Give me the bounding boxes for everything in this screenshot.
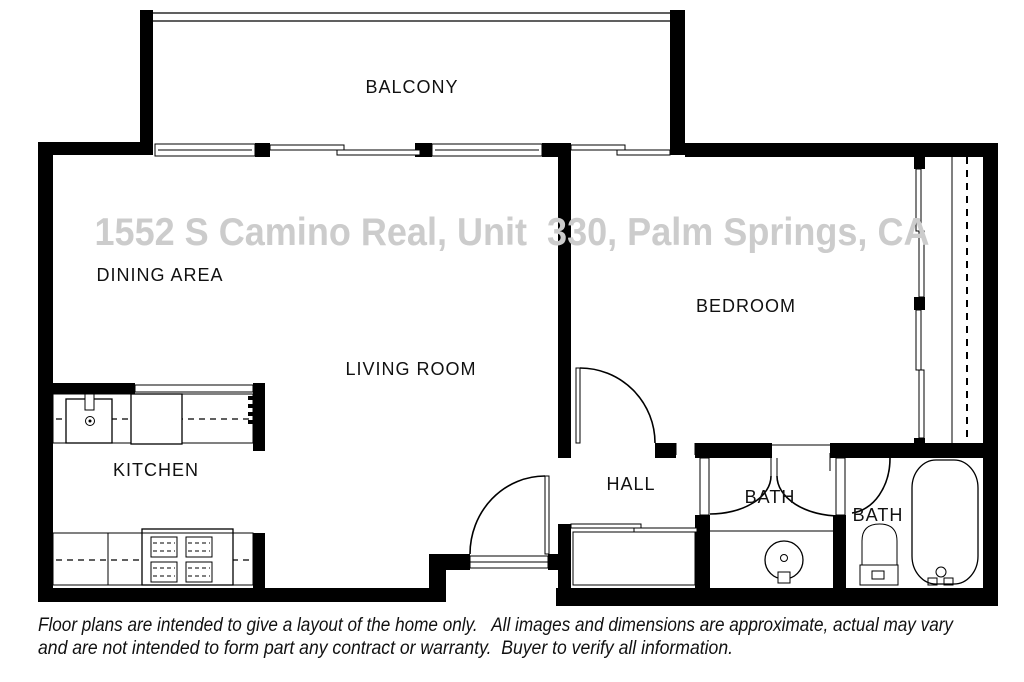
- toilet-tank-icon: [860, 565, 898, 585]
- room-label-bath-1: BATH: [745, 487, 796, 507]
- wall-left: [38, 142, 53, 602]
- closet-track-block: [914, 297, 925, 310]
- room-label-dining-area: DINING AREA: [96, 265, 223, 285]
- kitchen-drain-dot: [89, 420, 92, 423]
- kitchen-pier-lower: [253, 533, 265, 602]
- kitchen-pass-through: [135, 385, 253, 392]
- toilet-bowl-icon: [862, 524, 897, 567]
- hall-closet: [571, 524, 697, 585]
- bath1-fixtures: [710, 531, 833, 583]
- kitchen-wall-north: [52, 383, 135, 395]
- floor-plan-svg: 1552 S Camino Real, Unit 330, Palm Sprin…: [0, 0, 1024, 682]
- bedroom-wall-south-b: [695, 443, 772, 458]
- sink-pedestal-base: [778, 572, 790, 583]
- hall-closet-wall-west: [558, 524, 571, 602]
- north-wall-fenestration: [155, 143, 670, 157]
- refrigerator-icon: [131, 394, 182, 444]
- bath1-pocket-door-icon: [700, 458, 709, 515]
- room-label-bath-2: BATH: [853, 505, 904, 525]
- room-label-kitchen: KITCHEN: [113, 460, 199, 480]
- sliding-door-panel-icon: [571, 145, 625, 150]
- hall-closet-sliding-panel-icon: [571, 524, 641, 528]
- balcony-wall-right: [670, 10, 685, 155]
- room-label-living-room: LIVING ROOM: [345, 359, 476, 379]
- kitchen-fixtures: [53, 394, 255, 585]
- closet-track-block: [914, 155, 925, 169]
- floor-plan-page: 1552 S Camino Real, Unit 330, Palm Sprin…: [0, 0, 1024, 682]
- room-label-balcony: BALCONY: [365, 77, 458, 97]
- entry-door-swing-icon: [470, 476, 545, 554]
- bedroom-door-leaf: [576, 368, 580, 443]
- bedroom-wall-south-a: [655, 443, 676, 458]
- sliding-door-panel-icon: [337, 150, 420, 155]
- counter-tick: [248, 404, 255, 408]
- bedroom-wall-south-c: [830, 443, 983, 458]
- bedroom-door-swing-icon: [580, 368, 655, 443]
- wall-bottom-east: [556, 588, 998, 606]
- kitchen-pier-upper: [253, 383, 265, 451]
- wall-top-west: [38, 142, 153, 155]
- hall-closet-sliding-panel-icon: [634, 528, 697, 532]
- sliding-door-panel-icon: [617, 150, 670, 155]
- bathtub-icon: [912, 460, 978, 584]
- kitchen-faucet-icon: [85, 394, 94, 410]
- balcony-wall-left: [140, 10, 153, 155]
- closet-sliding-panel-icon: [919, 370, 924, 438]
- disclaimer-line-2: and are not intended to form part any co…: [38, 638, 733, 659]
- wall-pier: [255, 143, 270, 157]
- sliding-door-panel-icon: [270, 145, 344, 150]
- bath-divider-wall-lower: [833, 515, 846, 602]
- address-watermark: 1552 S Camino Real, Unit 330, Palm Sprin…: [95, 211, 930, 254]
- bath2-pocket-door-icon: [836, 458, 845, 515]
- bedroom-closet: [914, 155, 967, 455]
- bedroom-wall-west: [558, 143, 571, 458]
- entry-jamb-left: [444, 554, 470, 570]
- entry-door-leaf: [545, 476, 549, 554]
- wall-pier: [542, 143, 558, 157]
- closet-track-block: [914, 438, 925, 455]
- closet-sliding-panel-icon: [916, 310, 921, 370]
- room-label-hall: HALL: [606, 474, 655, 494]
- hall-closet-interior: [573, 532, 695, 585]
- counter-tick: [248, 396, 255, 400]
- counter-tick: [248, 420, 255, 424]
- disclaimer-line-1: Floor plans are intended to give a layou…: [38, 615, 954, 636]
- entry-step-wall: [429, 554, 446, 602]
- counter-tick: [248, 412, 255, 416]
- wall-bottom-west: [38, 588, 444, 602]
- wall-top-east: [685, 143, 998, 157]
- room-label-bedroom: BEDROOM: [696, 296, 796, 316]
- wall-right: [983, 143, 998, 606]
